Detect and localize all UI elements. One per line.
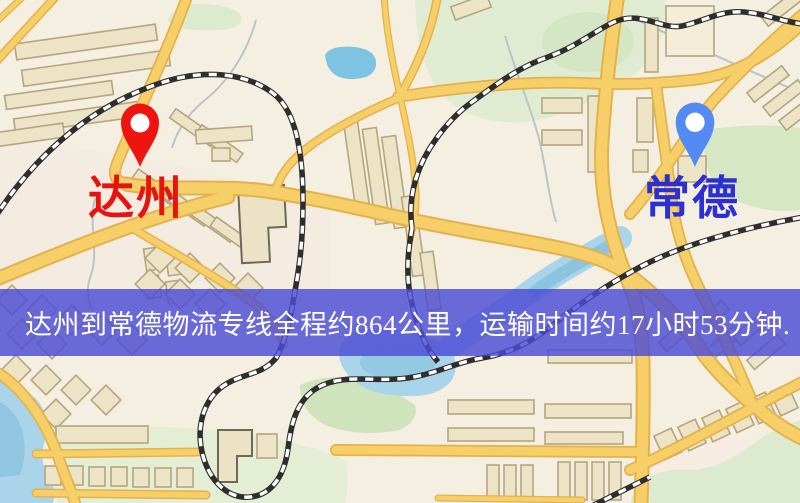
destination-pin-icon[interactable]: [673, 101, 717, 168]
origin-city-label: 达州: [88, 176, 184, 222]
origin-pin-icon[interactable]: [119, 102, 161, 168]
route-info-text: 达州到常德物流专线全程约864公里，运输时间约17小时53分钟.: [25, 303, 790, 342]
map-canvas[interactable]: 达州到常德物流专线全程约864公里，运输时间约17小时53分钟. 达州 常德: [0, 0, 800, 503]
route-info-banner: 达州到常德物流专线全程约864公里，运输时间约17小时53分钟.: [0, 289, 800, 356]
map-artwork: [0, 0, 800, 503]
destination-city-label: 常德: [644, 176, 740, 222]
